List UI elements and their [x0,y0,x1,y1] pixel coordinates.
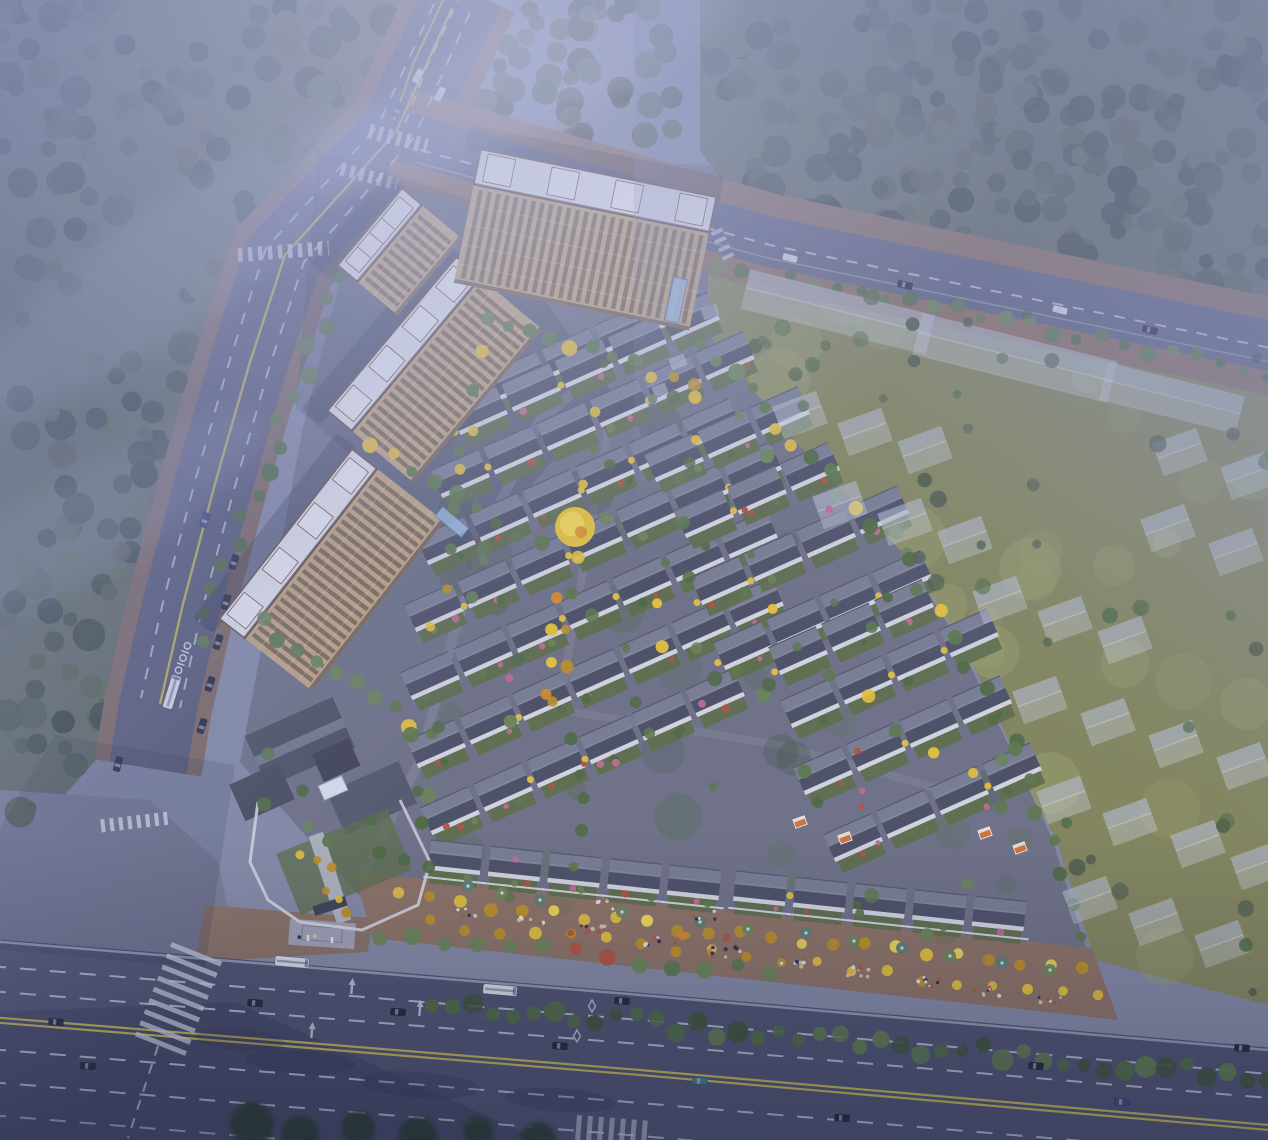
bottom-vignette [0,0,1268,1140]
atmosphere-haze [0,0,1268,1140]
rendering-canvas [0,0,1268,1140]
aerial-rendering [0,0,1268,1140]
